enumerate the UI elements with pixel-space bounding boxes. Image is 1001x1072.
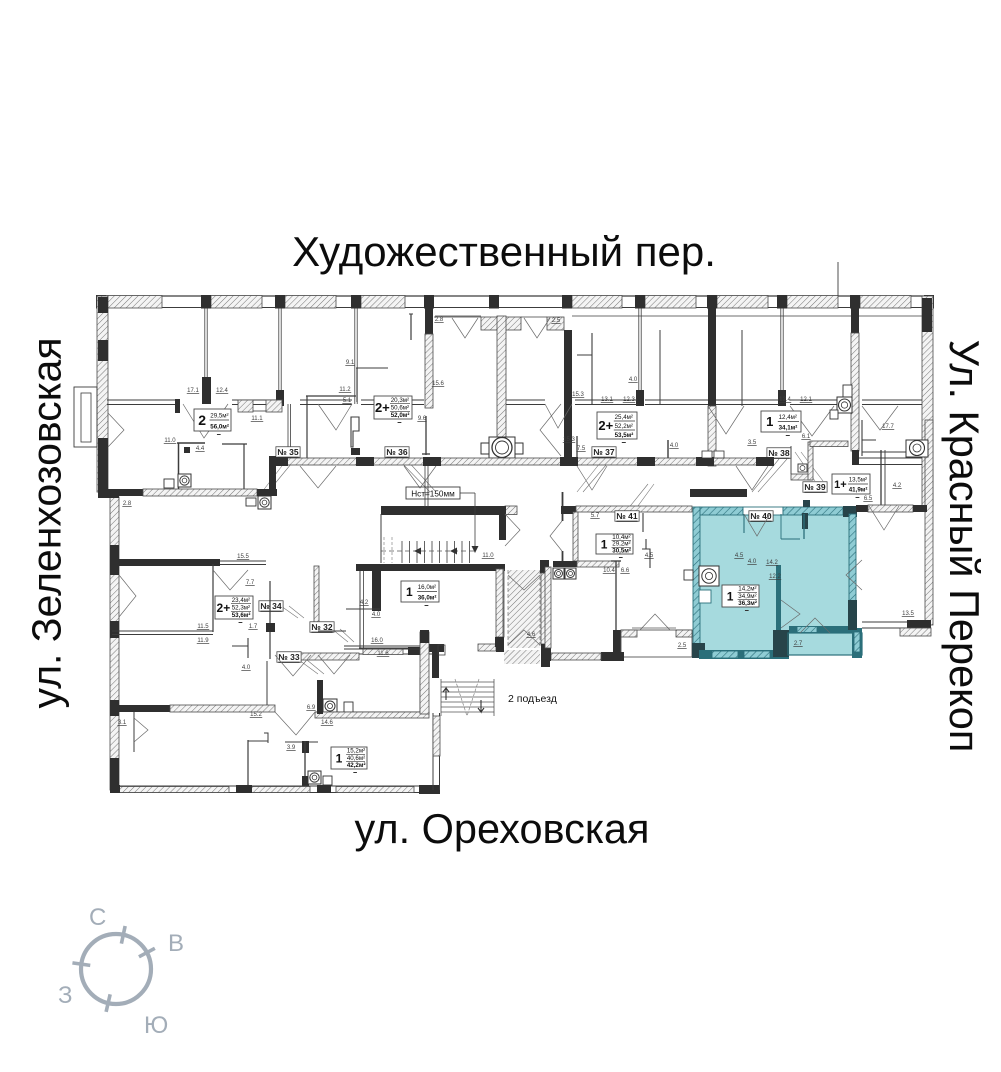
svg-text:4.2: 4.2 — [360, 600, 369, 606]
svg-text:4.5: 4.5 — [645, 553, 654, 559]
svg-text:14.2: 14.2 — [766, 560, 778, 566]
svg-text:53,6м²: 53,6м² — [232, 612, 251, 619]
svg-text:14,2м²: 14,2м² — [738, 586, 756, 593]
svg-text:1: 1 — [727, 589, 734, 603]
svg-text:50,6м²: 50,6м² — [391, 404, 409, 411]
svg-text:Ул. Красный Перекоп: Ул. Красный Перекоп — [941, 340, 988, 753]
svg-text:15.2: 15.2 — [250, 712, 262, 718]
svg-text:6.9: 6.9 — [307, 705, 316, 711]
svg-text:42,2м²: 42,2м² — [347, 762, 366, 769]
svg-text:36,3м²: 36,3м² — [738, 600, 757, 607]
svg-text:17.1: 17.1 — [187, 388, 199, 394]
svg-text:1: 1 — [766, 414, 773, 429]
svg-text:36,0м²: 36,0м² — [418, 594, 437, 601]
svg-text:11.1: 11.1 — [251, 416, 263, 422]
svg-text:2.8: 2.8 — [435, 317, 444, 323]
svg-text:№ 34: № 34 — [260, 601, 282, 611]
svg-text:2 подъезд: 2 подъезд — [508, 693, 557, 705]
svg-text:2.5: 2.5 — [552, 318, 561, 324]
svg-text:№ 41: № 41 — [616, 511, 638, 521]
svg-text:№ 33: № 33 — [278, 652, 300, 662]
svg-text:29,5м²: 29,5м² — [210, 412, 228, 419]
svg-text:Нст=150мм: Нст=150мм — [411, 489, 455, 498]
svg-text:5.1: 5.1 — [343, 398, 352, 404]
svg-text:11.0: 11.0 — [482, 553, 494, 559]
svg-text:2+: 2+ — [217, 601, 231, 615]
svg-text:6.1: 6.1 — [802, 434, 811, 440]
svg-text:№ 39: № 39 — [804, 482, 826, 492]
svg-text:9.1: 9.1 — [346, 360, 355, 366]
svg-text:№ 35: № 35 — [277, 447, 299, 457]
svg-text:2.7: 2.7 — [794, 641, 803, 647]
svg-text:15.6: 15.6 — [432, 381, 444, 387]
svg-text:10.4: 10.4 — [603, 568, 615, 574]
svg-text:15.3: 15.3 — [563, 437, 575, 443]
svg-text:14.6: 14.6 — [321, 720, 333, 726]
svg-text:6.6: 6.6 — [621, 568, 630, 574]
svg-text:№ 37: № 37 — [593, 447, 615, 457]
svg-text:20,3м²: 20,3м² — [391, 397, 409, 404]
svg-text:Ю: Ю — [144, 1012, 168, 1039]
svg-text:2.5: 2.5 — [678, 643, 687, 649]
svg-text:7.5: 7.5 — [577, 446, 586, 452]
svg-text:4.0: 4.0 — [242, 665, 251, 671]
svg-text:2: 2 — [198, 412, 206, 428]
svg-text:1.7: 1.7 — [249, 624, 258, 630]
svg-text:1: 1 — [601, 537, 608, 551]
svg-text:4.0: 4.0 — [748, 559, 757, 565]
svg-text:4.2: 4.2 — [893, 483, 902, 489]
svg-text:№ 36: № 36 — [386, 447, 408, 457]
svg-text:34,1м²: 34,1м² — [779, 424, 798, 431]
svg-text:11.0: 11.0 — [164, 438, 176, 444]
svg-text:15,2м²: 15,2м² — [347, 748, 365, 755]
svg-text:52,3м²: 52,3м² — [232, 604, 250, 611]
svg-text:С: С — [89, 904, 106, 931]
svg-text:23,4м²: 23,4м² — [232, 597, 250, 604]
svg-text:В: В — [168, 930, 184, 957]
svg-text:41,9м²: 41,9м² — [849, 487, 868, 494]
svg-text:12.4: 12.4 — [779, 397, 791, 403]
svg-text:34,9м²: 34,9м² — [738, 593, 756, 600]
svg-text:13,5м²: 13,5м² — [849, 477, 867, 484]
svg-text:Художественный пер.: Художественный пер. — [292, 228, 716, 275]
svg-text:12.3: 12.3 — [623, 397, 635, 403]
svg-text:12.2: 12.2 — [769, 574, 781, 580]
svg-text:№ 38: № 38 — [768, 448, 790, 458]
svg-text:16.0: 16.0 — [371, 638, 383, 644]
svg-text:З: З — [58, 982, 73, 1009]
svg-text:12,4м²: 12,4м² — [779, 414, 797, 421]
svg-text:2+: 2+ — [375, 400, 390, 415]
svg-text:56,0м²: 56,0м² — [210, 423, 229, 430]
svg-text:11.2: 11.2 — [339, 387, 351, 393]
svg-text:1+: 1+ — [834, 479, 847, 491]
svg-text:2+: 2+ — [598, 418, 613, 433]
svg-text:6.5: 6.5 — [864, 496, 873, 502]
svg-text:53,5м²: 53,5м² — [615, 432, 634, 439]
svg-text:7.7: 7.7 — [246, 580, 255, 586]
svg-text:5.7: 5.7 — [591, 513, 600, 519]
svg-text:4.0: 4.0 — [372, 612, 381, 618]
svg-text:4.0: 4.0 — [670, 443, 679, 449]
svg-text:13.1: 13.1 — [601, 397, 613, 403]
svg-text:11.5: 11.5 — [197, 624, 209, 630]
svg-text:4.4: 4.4 — [196, 446, 205, 452]
svg-text:4.5: 4.5 — [735, 553, 744, 559]
svg-text:4.0: 4.0 — [629, 377, 638, 383]
svg-text:15.5: 15.5 — [237, 554, 249, 560]
svg-text:1: 1 — [406, 585, 413, 599]
svg-text:3.9: 3.9 — [287, 745, 296, 751]
svg-text:12.4: 12.4 — [216, 388, 228, 394]
svg-text:16,0м²: 16,0м² — [418, 584, 436, 591]
svg-text:3.1: 3.1 — [118, 720, 127, 726]
svg-text:12.1: 12.1 — [800, 397, 812, 403]
svg-text:11.6: 11.6 — [377, 651, 389, 657]
svg-text:17.7: 17.7 — [882, 424, 894, 430]
svg-text:25,4м²: 25,4м² — [615, 414, 633, 421]
svg-text:30,5м²: 30,5м² — [612, 547, 631, 554]
svg-text:ул. Ореховская: ул. Ореховская — [355, 805, 650, 852]
svg-text:52,0м²: 52,0м² — [391, 412, 410, 419]
svg-text:11.9: 11.9 — [197, 638, 209, 644]
svg-text:40,6м²: 40,6м² — [347, 755, 365, 762]
svg-text:15.3: 15.3 — [572, 392, 584, 398]
svg-text:1: 1 — [336, 751, 343, 765]
svg-text:ул. Зеленхозовская: ул. Зеленхозовская — [24, 337, 70, 708]
svg-text:52,2м²: 52,2м² — [615, 423, 633, 430]
svg-text:13.5: 13.5 — [902, 611, 914, 617]
svg-text:3.5: 3.5 — [748, 440, 757, 446]
svg-text:2.8: 2.8 — [123, 501, 132, 507]
